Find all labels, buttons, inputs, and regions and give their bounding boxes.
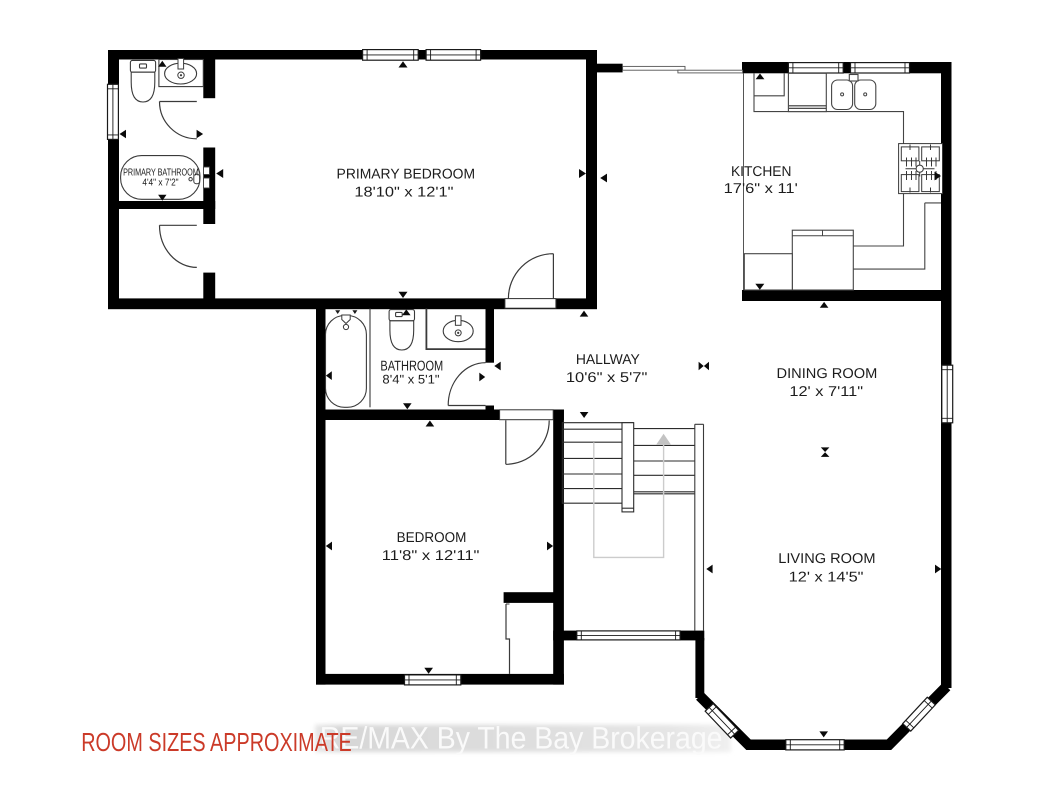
svg-text:HALLWAY: HALLWAY [576, 352, 640, 368]
svg-text:8'4" x 5'1": 8'4" x 5'1" [382, 373, 439, 387]
svg-text:11'8" x 12'11": 11'8" x 12'11" [382, 548, 480, 564]
svg-text:12' x 7'11": 12' x 7'11" [789, 384, 863, 400]
svg-text:PRIMARY BEDROOM: PRIMARY BEDROOM [337, 167, 476, 183]
svg-text:BEDROOM: BEDROOM [397, 530, 467, 546]
svg-text:KITCHEN: KITCHEN [731, 164, 792, 180]
svg-text:12' x 14'5": 12' x 14'5" [789, 570, 864, 586]
svg-text:17'6" x 11': 17'6" x 11' [724, 181, 798, 197]
svg-text:18'10" x 12'1": 18'10" x 12'1" [354, 185, 453, 201]
svg-text:4'4" x 7'2": 4'4" x 7'2" [142, 177, 179, 188]
svg-text:DINING ROOM: DINING ROOM [777, 366, 878, 382]
svg-text:10'6" x 5'7": 10'6" x 5'7" [566, 370, 648, 386]
svg-text:LIVING ROOM: LIVING ROOM [778, 551, 875, 567]
svg-text:ROOM SIZES APPROXIMATE: ROOM SIZES APPROXIMATE [81, 727, 352, 757]
svg-text:RE/MAX By The Bay Brokerage: RE/MAX By The Bay Brokerage [320, 720, 723, 755]
